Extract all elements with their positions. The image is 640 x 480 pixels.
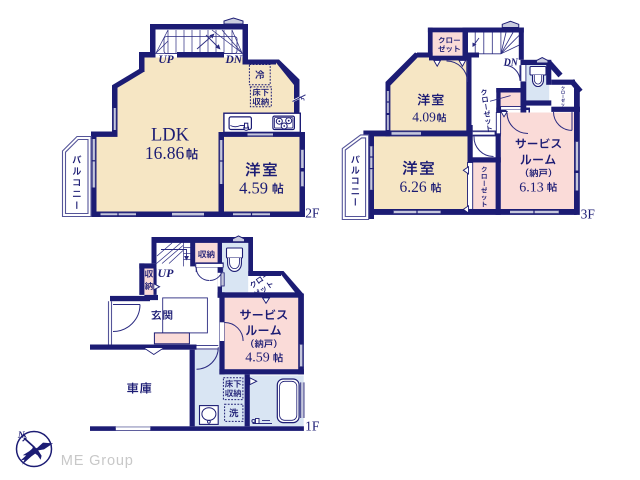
svg-text:3F: 3F bbox=[581, 206, 596, 221]
svg-text:2F: 2F bbox=[305, 206, 320, 221]
svg-text:ME Group: ME Group bbox=[61, 453, 134, 469]
svg-text:4.09: 4.09 bbox=[412, 109, 436, 124]
svg-text:4.59: 4.59 bbox=[245, 351, 270, 366]
svg-text:N: N bbox=[17, 431, 26, 441]
svg-text:6.13: 6.13 bbox=[519, 180, 544, 195]
svg-text:DN: DN bbox=[224, 54, 242, 66]
svg-text:1F: 1F bbox=[305, 419, 320, 434]
svg-text:6.26: 6.26 bbox=[399, 179, 426, 196]
svg-text:DN: DN bbox=[503, 58, 519, 69]
svg-text:16.86: 16.86 bbox=[145, 143, 185, 163]
svg-text:UP: UP bbox=[158, 54, 174, 66]
svg-text:UP: UP bbox=[158, 266, 175, 280]
svg-text:4.59: 4.59 bbox=[239, 179, 268, 198]
